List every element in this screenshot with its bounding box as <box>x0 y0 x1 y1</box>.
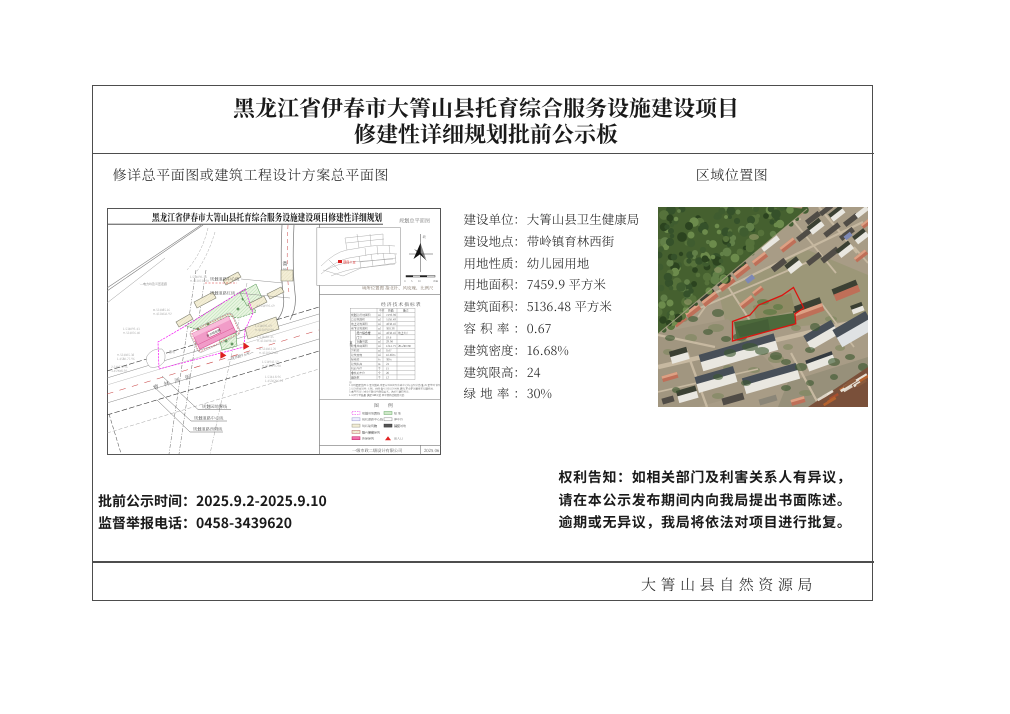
svg-text:单位: 单位 <box>379 308 385 312</box>
svg-text:建筑基底面积: 建筑基底面积 <box>351 344 368 348</box>
svg-text:数值: 数值 <box>388 308 394 312</box>
svg-text:北: 北 <box>423 235 427 240</box>
svg-text:建筑密度: 建筑密度 <box>351 353 362 357</box>
svg-text:4.日照分析结果 满足 GB规范 要求并符合相关规定.: 4.日照分析结果 满足 GB规范 要求并符合相关规定. <box>349 393 405 397</box>
svg-text:地上建筑面积: 地上建筑面积 <box>351 322 368 326</box>
svg-text:规划道路中心线: 规划道路中心线 <box>210 276 240 283</box>
svg-text:4-5344995.69: 4-5344995.69 <box>256 304 275 308</box>
svg-text:1-4580.77.96: 1-4580.77.96 <box>117 357 135 361</box>
svg-text:Y-534076.40: Y-534076.40 <box>123 331 140 335</box>
svg-text:7459.90: 7459.90 <box>386 313 397 317</box>
svg-text:Y-4530792.90: Y-4530792.90 <box>255 328 274 332</box>
svg-text:15: 15 <box>386 366 389 370</box>
svg-text:个: 个 <box>378 366 381 370</box>
svg-text:Y-4530736.90: Y-4530736.90 <box>190 279 209 283</box>
svg-text:㎡: ㎡ <box>378 313 381 317</box>
svg-text:%: % <box>378 358 381 362</box>
svg-text:停车位: 停车位 <box>394 418 403 422</box>
svg-text:项目位置: 项目位置 <box>343 260 357 265</box>
svg-text:Y-4530762.00: Y-4530762.00 <box>259 351 278 355</box>
svg-text:经济技术指标表: 经济技术指标表 <box>381 301 422 308</box>
svg-text:规划园地界线: 规划园地界线 <box>202 403 228 410</box>
svg-text:18.6: 18.6 <box>386 335 392 339</box>
svg-text:现状建筑物: 现状建筑物 <box>362 423 377 428</box>
svg-text:图 例: 图 例 <box>374 402 397 409</box>
svg-text:新建建筑: 新建建筑 <box>362 437 374 441</box>
svg-text:2025.06: 2025.06 <box>424 448 440 454</box>
svg-text:4836.10: 4836.10 <box>386 331 396 335</box>
svg-text:规划道路中心线: 规划道路中心线 <box>194 415 224 422</box>
svg-text:24: 24 <box>386 362 390 366</box>
svg-text:设备用房: 设备用房 <box>357 340 368 344</box>
svg-text:1-4530706.73: 1-4530706.73 <box>265 379 284 383</box>
svg-text:30%: 30% <box>386 358 392 362</box>
svg-text:建筑限高: 建筑限高 <box>351 362 362 366</box>
svg-text:0.67: 0.67 <box>386 349 392 353</box>
svg-text:规划总用地面积: 规划总用地面积 <box>351 313 371 317</box>
svg-text:一—电力线及高压走廊: 一—电力线及高压走廊 <box>137 281 167 286</box>
svg-text:班级数: 班级数 <box>351 375 360 379</box>
svg-text:㎡: ㎡ <box>378 349 381 353</box>
svg-text:16.68%: 16.68% <box>386 353 396 357</box>
svg-text:铺装场地: 铺装场地 <box>394 423 406 428</box>
svg-text:㎡: ㎡ <box>378 331 381 335</box>
svg-text:1244.75: 1244.75 <box>386 344 396 348</box>
svg-text:门卫: 门卫 <box>357 335 363 339</box>
svg-text:容积率: 容积率 <box>351 349 360 353</box>
svg-text:12: 12 <box>386 375 389 379</box>
svg-text:地上3层: 地上3层 <box>398 331 408 335</box>
svg-text:300.38: 300.38 <box>386 326 395 330</box>
svg-text:㎡: ㎡ <box>378 335 381 339</box>
svg-text:20: 20 <box>386 371 390 375</box>
svg-text:Y-4530698.30: Y-4530698.30 <box>257 339 276 343</box>
svg-text:绿 地: 绿 地 <box>394 411 401 415</box>
svg-text:一级市政二级设计有限公司: 一级市政二级设计有限公司 <box>352 448 402 454</box>
svg-text:托育综合楼: 托育综合楼 <box>357 331 371 335</box>
svg-text:宗地: 宗地 <box>169 349 175 354</box>
svg-text:场所位置图 指北针、风玫瑰、比例尺: 场所位置图 指北针、风玫瑰、比例尺 <box>362 286 434 292</box>
svg-text:4836.10: 4836.10 <box>386 322 396 326</box>
svg-text:㎡: ㎡ <box>378 322 381 326</box>
svg-text:28.96: 28.96 <box>386 340 394 344</box>
svg-text:备注: 备注 <box>403 308 409 312</box>
svg-text:绿地率: 绿地率 <box>351 358 360 362</box>
svg-text:规划道路红线: 规划道路红线 <box>210 290 236 297</box>
svg-text:㎡: ㎡ <box>378 353 381 357</box>
svg-text:地下建筑面积: 地下建筑面积 <box>351 326 368 330</box>
svg-text:㎡: ㎡ <box>378 326 381 330</box>
svg-text:Y-4530395.90: Y-4530395.90 <box>262 364 281 368</box>
svg-text:现状道路中心线: 现状道路中心线 <box>362 418 383 422</box>
svg-text:Y-4530616.92: Y-4530616.92 <box>153 312 172 316</box>
svg-text:㎡: ㎡ <box>378 340 381 344</box>
svg-text:个: 个 <box>378 371 381 375</box>
svg-text:5136.48: 5136.48 <box>386 317 396 321</box>
svg-text:规划用地界线: 规划用地界线 <box>362 410 380 415</box>
svg-text:3-4590/8.92: 3-4590/8.92 <box>111 369 127 373</box>
svg-text:出入口: 出入口 <box>394 437 403 441</box>
svg-text:黑龙江省伊春市大箐山县托育综合服务设施建设项目修建性详细规划: 黑龙江省伊春市大箐山县托育综合服务设施建设项目修建性详细规划 <box>152 209 382 224</box>
svg-text:机动车位: 机动车位 <box>351 366 362 370</box>
svg-text:㎡: ㎡ <box>378 344 381 348</box>
svg-text:非机动车位: 非机动车位 <box>351 371 365 375</box>
svg-text:个: 个 <box>378 375 381 379</box>
svg-text:规划总平面图: 规划总平面图 <box>399 217 430 225</box>
svg-text:既有保留建筑: 既有保留建筑 <box>362 429 380 434</box>
svg-text:2F+3F=5F: 2F+3F=5F <box>398 344 411 348</box>
svg-text:规划道路西侧线: 规划道路西侧线 <box>193 426 223 433</box>
svg-text:20m: 20m <box>433 279 438 283</box>
svg-text:㎡: ㎡ <box>378 317 381 321</box>
svg-text:总建筑面积: 总建筑面积 <box>351 317 365 321</box>
